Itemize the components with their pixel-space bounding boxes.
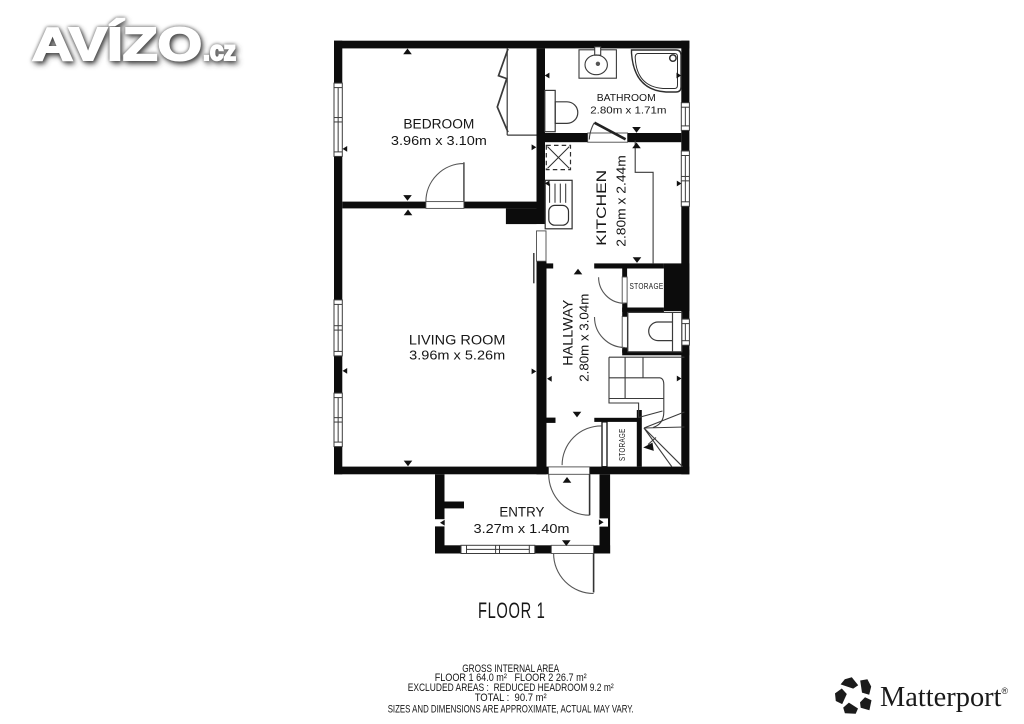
svg-text:3.96m x 5.26m: 3.96m x 5.26m	[409, 347, 505, 362]
svg-text:STORAGE: STORAGE	[630, 282, 664, 291]
svg-text:STORAGE: STORAGE	[618, 428, 627, 461]
svg-text:2.80m x 3.04m: 2.80m x 3.04m	[578, 294, 592, 382]
svg-text:FLOOR 1: FLOOR 1	[478, 598, 546, 623]
svg-text:SIZES AND DIMENSIONS ARE APPRO: SIZES AND DIMENSIONS ARE APPROXIMATE, AC…	[388, 704, 634, 716]
svg-text:BATHROOM: BATHROOM	[597, 92, 656, 104]
svg-text:KITCHEN: KITCHEN	[594, 170, 609, 246]
svg-text:TOTAL : 90.7 m²: TOTAL : 90.7 m²	[475, 692, 547, 704]
svg-text:BEDROOM: BEDROOM	[403, 116, 474, 131]
svg-text:ENTRY: ENTRY	[499, 503, 545, 519]
svg-text:2.80m x 2.44m: 2.80m x 2.44m	[614, 155, 628, 247]
svg-text:3.96m x 3.10m: 3.96m x 3.10m	[391, 133, 487, 148]
svg-text:LIVING ROOM: LIVING ROOM	[409, 333, 506, 348]
svg-text:3.27m x 1.40m: 3.27m x 1.40m	[474, 521, 570, 536]
svg-text:2.80m x 1.71m: 2.80m x 1.71m	[590, 104, 667, 116]
svg-text:HALLWAY: HALLWAY	[560, 300, 575, 366]
